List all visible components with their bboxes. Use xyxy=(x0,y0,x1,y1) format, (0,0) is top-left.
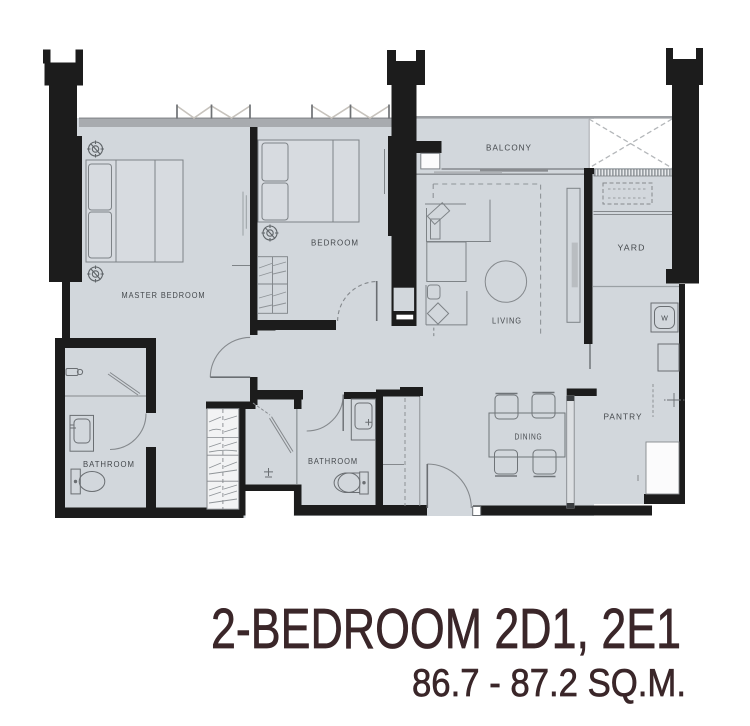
svg-text:BATHROOM: BATHROOM xyxy=(83,460,135,469)
svg-text:YARD: YARD xyxy=(618,244,646,253)
svg-text:DINING: DINING xyxy=(515,433,543,442)
svg-text:BEDROOM: BEDROOM xyxy=(311,239,359,248)
svg-text:MASTER BEDROOM: MASTER BEDROOM xyxy=(122,291,206,300)
svg-text:86.7 - 87.2 SQ.M.: 86.7 - 87.2 SQ.M. xyxy=(412,662,686,705)
svg-text:PANTRY: PANTRY xyxy=(604,413,643,422)
svg-text:W: W xyxy=(661,316,668,323)
svg-text:BATHROOM: BATHROOM xyxy=(308,457,358,466)
svg-text:2-BEDROOM 2D1, 2E1: 2-BEDROOM 2D1, 2E1 xyxy=(211,597,681,661)
svg-text:LIVING: LIVING xyxy=(492,317,522,326)
svg-text:BALCONY: BALCONY xyxy=(486,144,532,153)
